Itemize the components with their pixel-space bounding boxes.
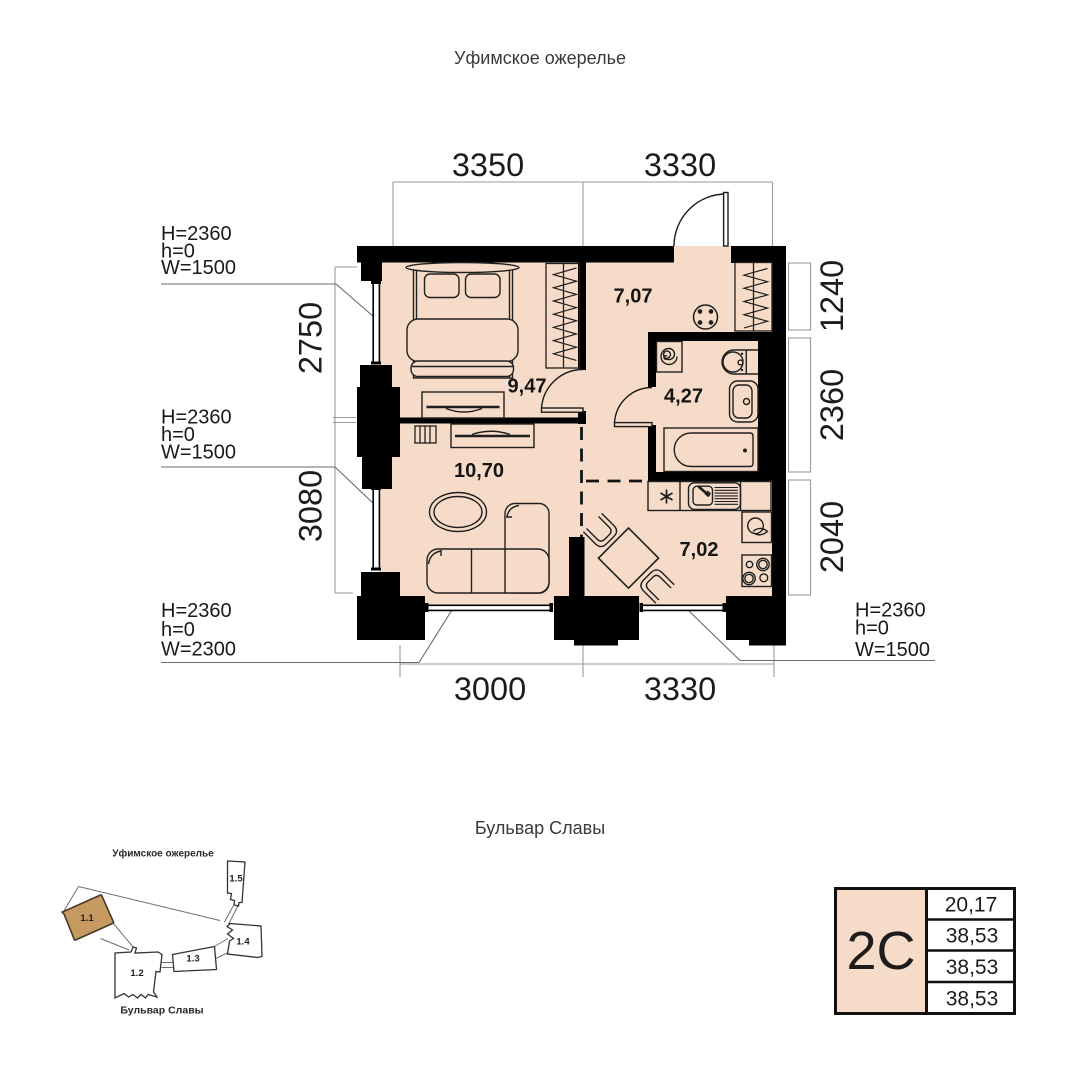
svg-text:1.3: 1.3 [186,954,199,965]
svg-text:W=1500: W=1500 [161,442,236,464]
svg-text:Бульвар Славы: Бульвар Славы [120,1005,203,1017]
svg-text:Уфимское ожерелье: Уфимское ожерелье [112,848,214,860]
svg-text:20,17: 20,17 [945,894,998,917]
svg-text:3350: 3350 [452,147,524,183]
svg-text:7,07: 7,07 [614,286,653,308]
svg-text:3330: 3330 [644,147,716,183]
svg-text:1240: 1240 [814,260,850,332]
svg-text:W=1500: W=1500 [855,639,930,661]
svg-text:38,53: 38,53 [946,988,999,1011]
svg-text:1.1: 1.1 [80,913,94,924]
svg-text:Уфимское ожерелье: Уфимское ожерелье [454,48,626,68]
svg-text:3330: 3330 [644,671,716,707]
svg-text:2750: 2750 [293,302,329,374]
svg-text:W=2300: W=2300 [161,639,236,661]
svg-text:2С: 2С [846,921,915,981]
svg-text:9,47: 9,47 [508,376,547,398]
svg-text:4,27: 4,27 [664,386,703,408]
svg-text:1.2: 1.2 [130,968,143,979]
svg-text:38,53: 38,53 [946,956,999,979]
svg-text:W=1500: W=1500 [161,257,236,279]
svg-text:2360: 2360 [814,369,850,441]
svg-text:7,02: 7,02 [680,539,719,561]
svg-text:38,53: 38,53 [946,925,999,948]
svg-text:3000: 3000 [454,671,526,707]
svg-text:10,70: 10,70 [454,460,504,482]
svg-text:1.5: 1.5 [229,874,243,885]
svg-text:3080: 3080 [293,470,329,542]
svg-text:Бульвар Славы: Бульвар Славы [475,818,605,838]
svg-text:1.4: 1.4 [236,937,250,948]
svg-text:2040: 2040 [814,501,850,573]
svg-text:h=0: h=0 [855,618,889,640]
